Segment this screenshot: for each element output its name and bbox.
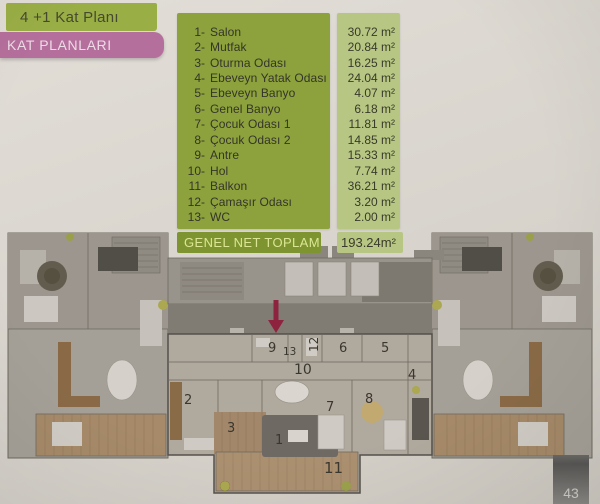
page-number: 43 <box>563 485 579 504</box>
legend-box: 1-Salon 2-Mutfak 3-Oturma Odası 4-Ebevey… <box>177 13 330 229</box>
room-no: 5- <box>181 86 205 100</box>
room-no: 6- <box>181 102 205 116</box>
room-label: Çocuk Odası 2 <box>210 133 291 147</box>
room-area: 6.18 m² <box>337 101 400 116</box>
room-no: 9- <box>181 148 205 162</box>
room-area: 3.20 m² <box>337 194 400 209</box>
room-area: 16.25 m² <box>337 55 400 70</box>
room-number-5: 5 <box>381 341 389 356</box>
room-number-8: 8 <box>365 392 373 407</box>
room-area: 2.00 m² <box>337 209 400 224</box>
room-area: 24.04 m² <box>337 70 400 85</box>
legend-row: 5-Ebeveyn Banyo <box>177 86 330 101</box>
room-label: WC <box>210 210 230 224</box>
room-number-4: 4 <box>408 368 416 383</box>
legend-row: 8-Çocuk Odası 2 <box>177 132 330 147</box>
page-tab: 43 <box>553 455 589 504</box>
room-no: 7- <box>181 117 205 131</box>
legend-row: 11-Balkon <box>177 178 330 193</box>
room-area: 20.84 m² <box>337 39 400 54</box>
total-value: 193.24m² <box>341 235 396 250</box>
total-bar: GENEL NET TOPLAM <box>177 232 321 253</box>
room-no: 10- <box>181 164 205 178</box>
room-no: 11- <box>181 179 205 193</box>
area-strip: 30.72 m² 20.84 m² 16.25 m² 24.04 m² 4.07… <box>337 13 400 229</box>
title-box: 4 +1 Kat Planı <box>6 3 157 31</box>
room-no: 8- <box>181 133 205 147</box>
page-title: 4 +1 Kat Planı <box>20 9 119 26</box>
room-label: Ebeveyn Yatak Odası <box>210 71 327 85</box>
room-area: 11.81 m² <box>337 117 400 132</box>
room-no: 2- <box>181 40 205 54</box>
corridor <box>168 304 432 334</box>
legend-row: 13-WC <box>177 209 330 224</box>
section-label: KAT PLANLARI <box>7 37 112 53</box>
legend-row: 1-Salon <box>177 24 330 39</box>
legend-row: 6-Genel Banyo <box>177 101 330 116</box>
room-area: 30.72 m² <box>337 24 400 39</box>
room-number-11: 11 <box>324 459 343 477</box>
right-wing <box>432 233 592 458</box>
room-number-7: 7 <box>326 400 334 415</box>
room-area: 15.33 m² <box>337 148 400 163</box>
legend-row: 10-Hol <box>177 163 330 178</box>
room-label: Genel Banyo <box>210 102 280 116</box>
room-number-3: 3 <box>227 421 235 436</box>
room-label: Ebeveyn Banyo <box>210 86 295 100</box>
room-label: Balkon <box>210 179 247 193</box>
common-area <box>168 246 444 334</box>
room-number-1: 1 <box>275 433 283 448</box>
legend-row: 7-Çocuk Odası 1 <box>177 117 330 132</box>
room-number-6: 6 <box>339 341 347 356</box>
room-no: 1- <box>181 25 205 39</box>
featured-unit <box>168 334 432 493</box>
room-no: 13- <box>181 210 205 224</box>
total-label: GENEL NET TOPLAM <box>184 235 320 250</box>
room-number-10: 10 <box>294 362 312 378</box>
room-label: Çocuk Odası 1 <box>210 117 291 131</box>
room-label: Oturma Odası <box>210 56 287 70</box>
room-no: 3- <box>181 56 205 70</box>
room-label: Mutfak <box>210 40 247 54</box>
room-area: 36.21 m² <box>337 178 400 193</box>
room-number-13: 13 <box>283 346 296 358</box>
legend-row: 4-Ebeveyn Yatak Odası <box>177 70 330 85</box>
room-area: 7.74 m² <box>337 163 400 178</box>
brochure-page: 1 2 3 4 5 6 7 8 9 10 11 12 13 4 +1 Kat P… <box>0 0 600 504</box>
room-no: 4- <box>181 71 205 85</box>
room-label: Çamaşır Odası <box>210 195 292 209</box>
legend-row: 9-Antre <box>177 148 330 163</box>
total-value-box: 193.24m² <box>337 232 403 253</box>
legend-row: 12-Çamaşır Odası <box>177 194 330 209</box>
room-number-9: 9 <box>268 341 276 356</box>
room-label: Hol <box>210 164 228 178</box>
room-area: 14.85 m² <box>337 132 400 147</box>
room-number-12: 12 <box>307 337 321 352</box>
legend-row: 2-Mutfak <box>177 39 330 54</box>
room-area: 4.07 m² <box>337 86 400 101</box>
room-number-2: 2 <box>184 393 192 408</box>
room-label: Antre <box>210 148 239 162</box>
legend-row: 3-Oturma Odası <box>177 55 330 70</box>
room-no: 12- <box>181 195 205 209</box>
section-ribbon: KAT PLANLARI <box>0 32 164 58</box>
room-label: Salon <box>210 25 241 39</box>
